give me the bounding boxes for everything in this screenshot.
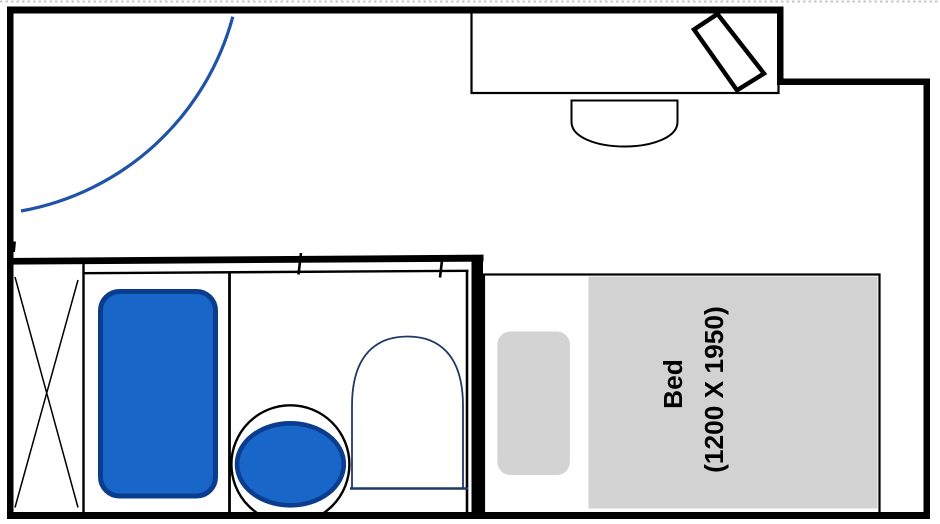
svg-text:Bed: Bed <box>658 359 688 409</box>
svg-text:(1200 X 1950): (1200 X 1950) <box>699 306 729 473</box>
